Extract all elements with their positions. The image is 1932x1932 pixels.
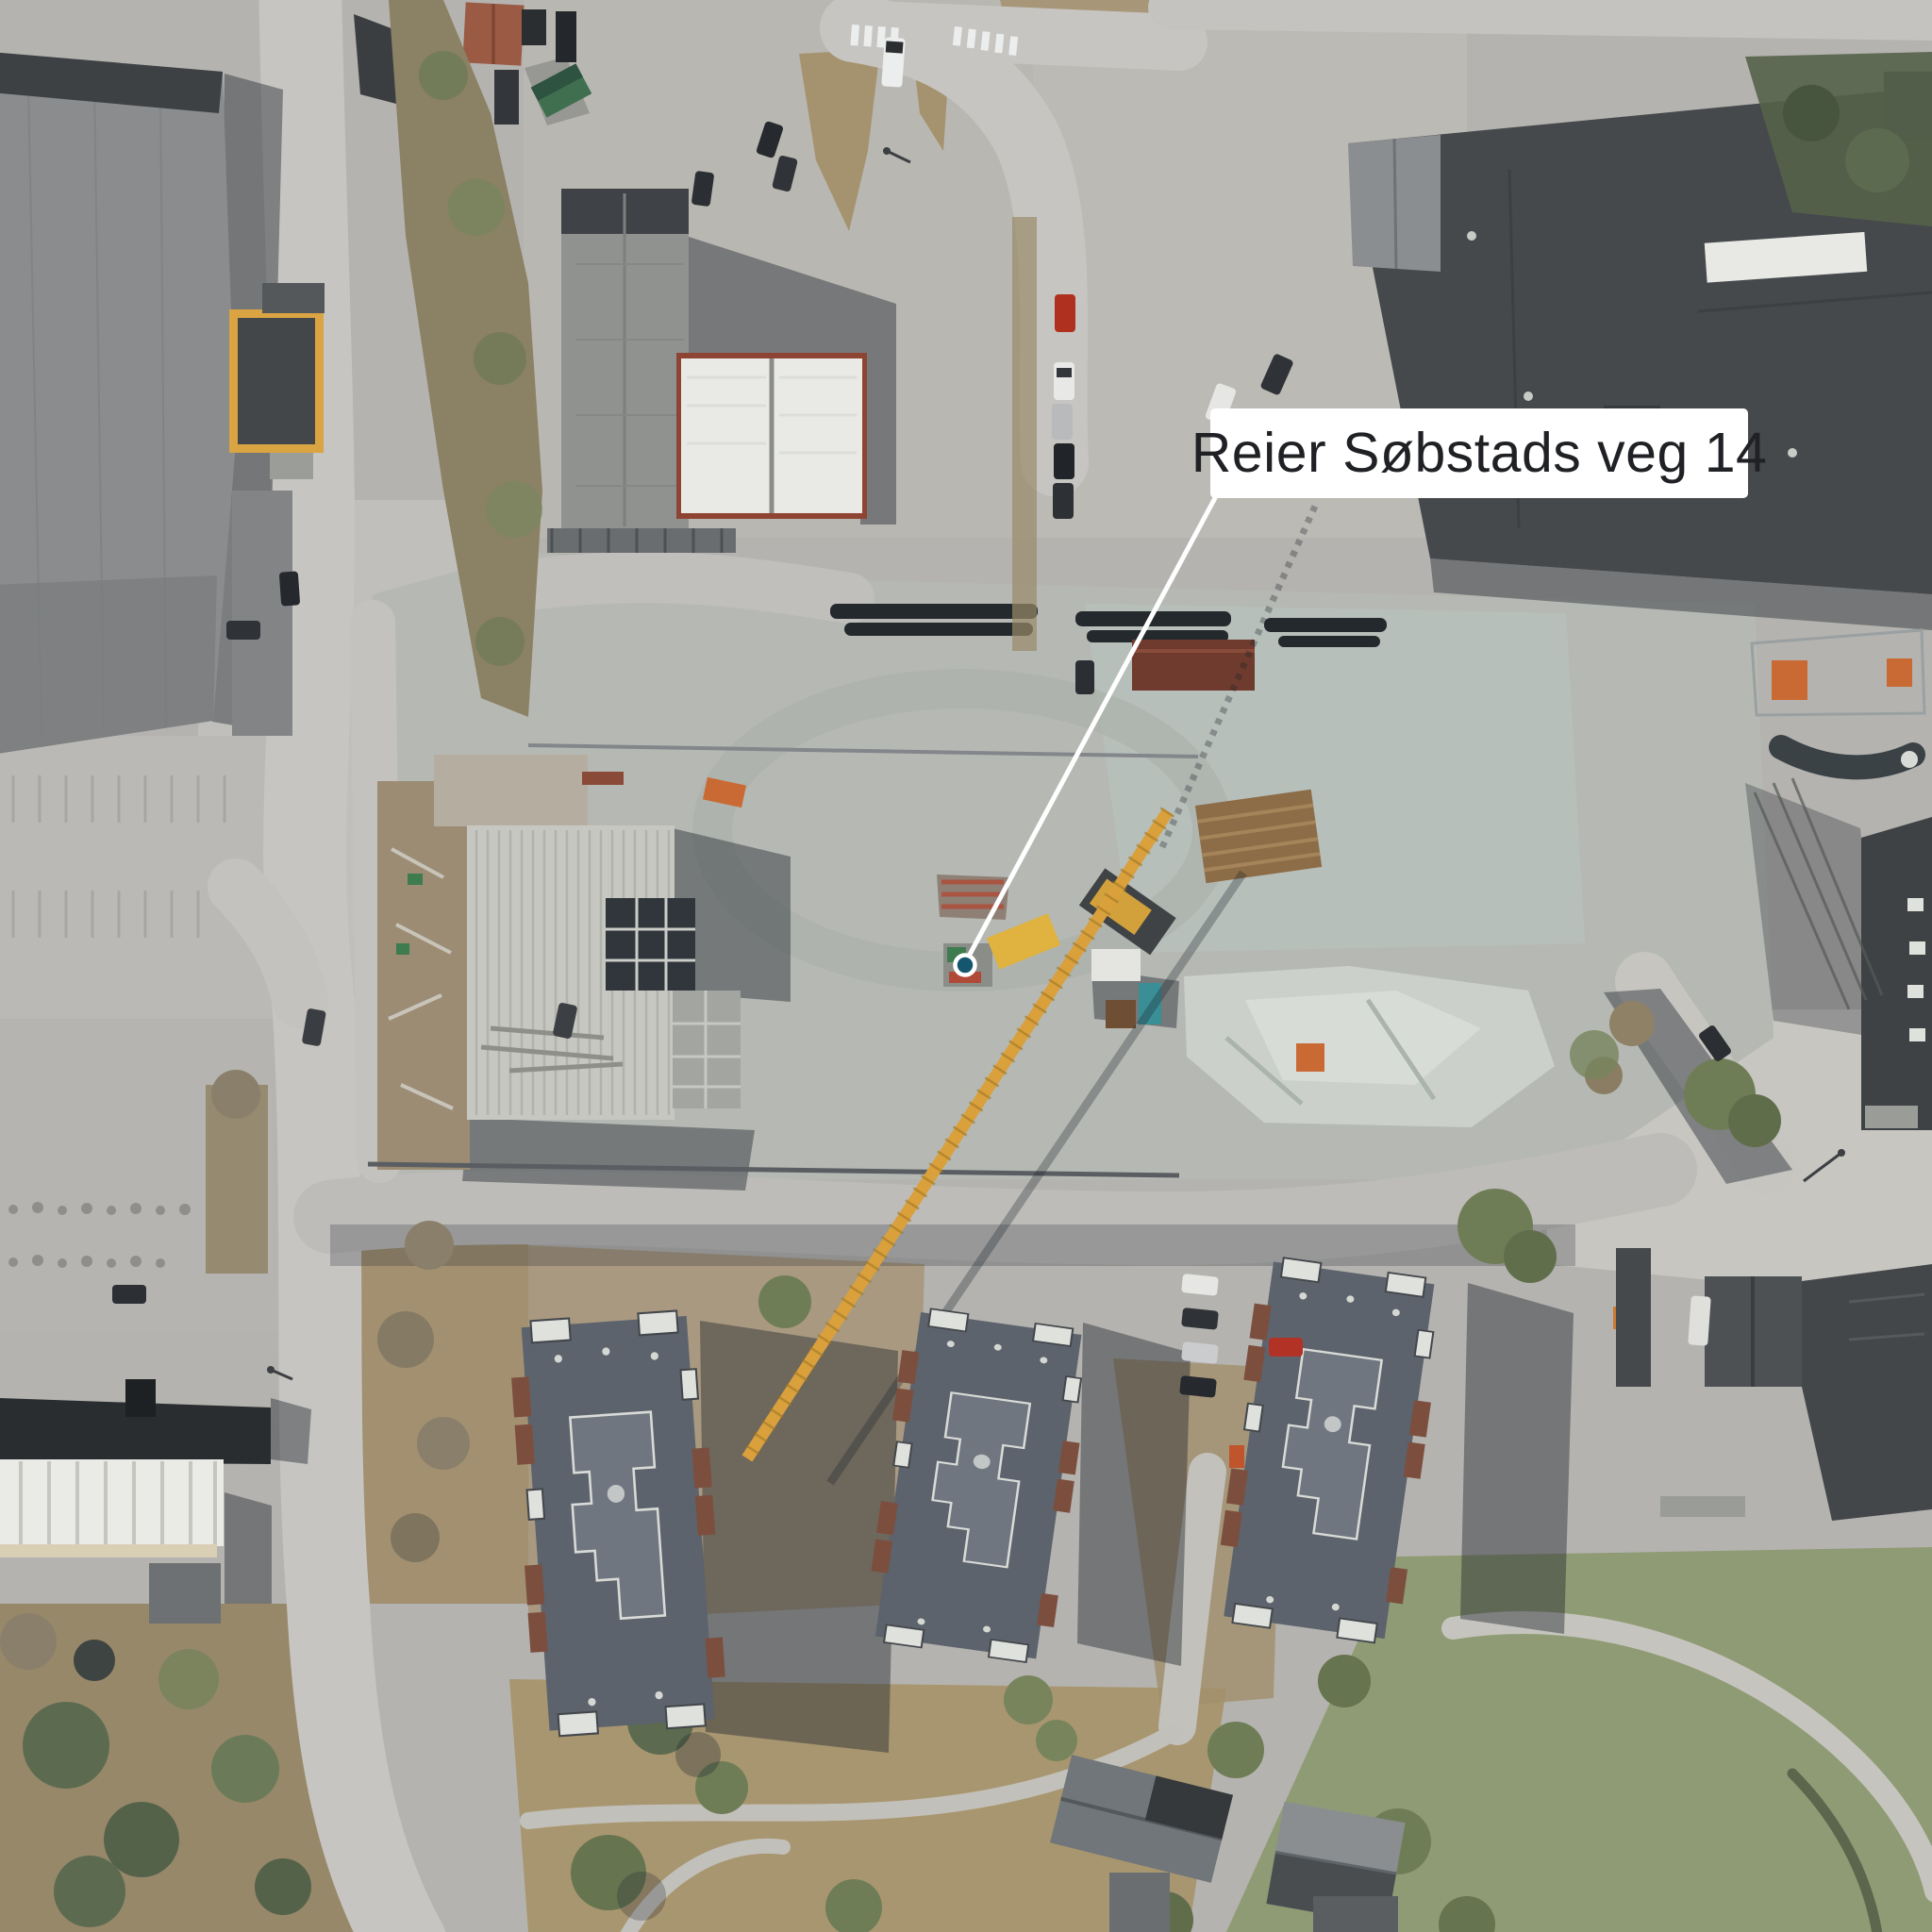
address-marker[interactable] [956, 956, 975, 975]
car [1053, 483, 1074, 519]
van-black [556, 11, 576, 62]
white-roof-hall [676, 353, 867, 519]
shed-annex [149, 1563, 221, 1624]
van-white [1688, 1295, 1711, 1345]
car [1075, 660, 1094, 694]
aerial-photo [0, 0, 1932, 1932]
scaffold-walkway [547, 528, 736, 553]
dirt-strip [377, 781, 470, 1170]
site-container [1132, 640, 1255, 691]
car [226, 621, 260, 640]
car [1054, 443, 1074, 479]
lumber-stack [1195, 790, 1322, 883]
address-callout-text: Reier Søbstads veg 14 [1191, 425, 1768, 481]
site-trailer [1091, 949, 1141, 981]
van-white [881, 37, 906, 87]
truck-dark [494, 70, 519, 125]
tree-shadow-blob [74, 1640, 115, 1681]
annex-yellow-frame [229, 283, 325, 479]
car [1052, 404, 1073, 440]
car-red [1055, 294, 1075, 332]
address-callout[interactable]: Reier Søbstads veg 14 [1210, 408, 1748, 498]
car [1181, 1307, 1219, 1330]
annex-gray [232, 491, 292, 736]
container-black [522, 9, 546, 45]
car-red [1269, 1338, 1303, 1357]
car [112, 1285, 146, 1304]
terrace [1865, 1106, 1918, 1128]
car [1179, 1375, 1217, 1398]
car-white [1054, 362, 1074, 400]
dumpster-orange [1229, 1445, 1244, 1468]
car [279, 571, 300, 606]
car [1181, 1341, 1219, 1364]
map-viewport[interactable]: Reier Søbstads veg 14 [0, 0, 1932, 1932]
car [1181, 1274, 1219, 1296]
